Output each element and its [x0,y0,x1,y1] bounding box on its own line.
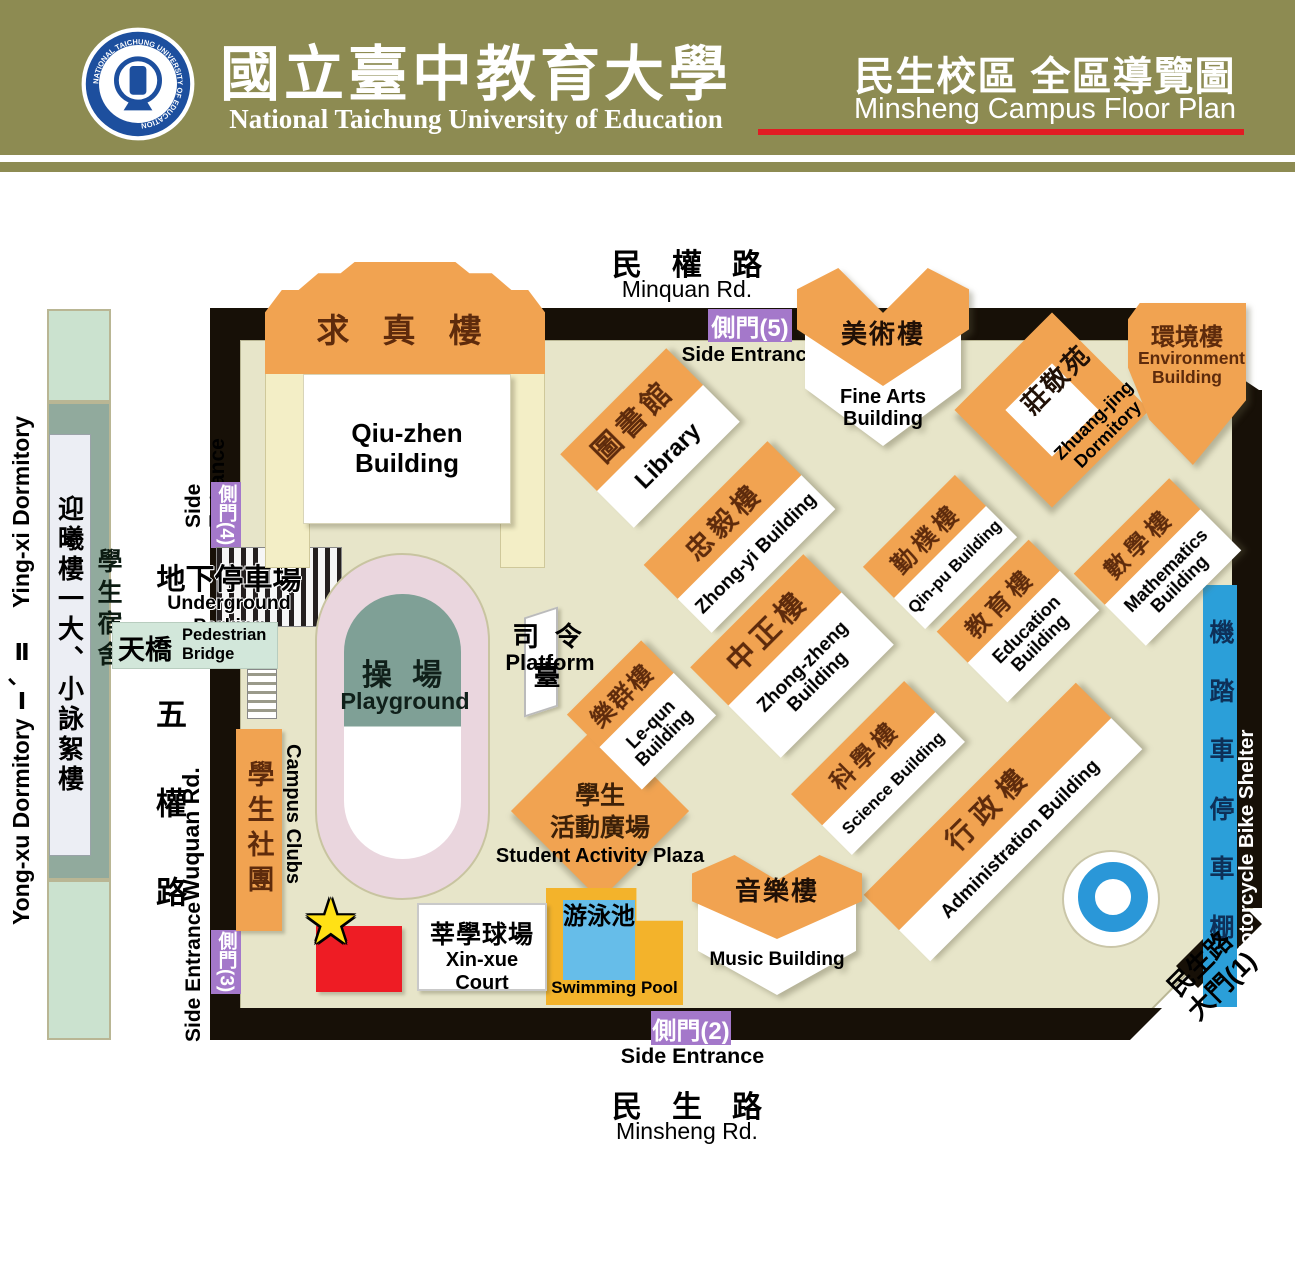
side-entrance4-badge: 側門(4) [211,482,241,548]
swimming-pool: 游泳池 Swimming Pool [546,888,683,1005]
star-icon: ★ [303,892,359,954]
road-minquan-en: Minquan Rd. [572,276,802,303]
side-entrance4-zh: 側門(4) [213,484,240,545]
music-zh: 音樂樓 [692,871,862,908]
side-entrance4-en: Side Entrance [182,388,208,528]
qiuzhen-zh: 求 真 樓 [265,304,545,352]
music-en: Music Building [692,949,862,971]
bike-shelter-en: Motorcycle Bike Shelter [1232,588,1262,1104]
playground-en: Playground [322,688,488,715]
campus-map-poster: NATIONAL TAICHUNG UNIVERSITY OF EDUCATIO… [0,0,1295,1264]
side-entrance2-en: Side Entrance [610,1044,775,1069]
xinxue-en: Xin-xue Court [419,949,545,995]
water-tower-ring [1078,862,1148,932]
xinxue-zh: 莘學球場 [419,915,545,951]
activity-plaza-en: Student Activity Plaza [482,845,718,868]
building-finearts: 美術樓 Fine Arts Building [797,268,969,466]
dormitory-hall: 迎曦樓一大、小詠絮樓 [49,434,91,856]
xinxue-court: 莘學球場 Xin-xue Court [417,903,547,991]
dormitory-hall-label: 迎曦樓一大、小詠絮樓 [52,495,89,795]
qiuzhen-en: Qiu-zhen Building [327,419,487,479]
side-entrance3-badge: 側門(3) [211,930,241,994]
building-music: 音樂樓 Music Building [692,855,862,997]
side-entrance3-zh: 側門(3) [213,931,240,992]
qiuzhen-face: Qiu-zhen Building [303,374,511,524]
dormitory-block-bottom [47,880,111,1040]
dormitory-block-top [47,309,111,402]
finearts-zh: 美術樓 [797,314,969,351]
building-environment: 環境樓 Environment Building [1128,303,1246,465]
road-wuquan-en: Wuquan Rd. [178,716,205,901]
platform-en: Platform [500,650,600,676]
campus-clubs-building: 學生社團 [236,729,282,931]
pool-en: Swimming Pool [548,978,681,998]
pedestrian-bridge-zh: 天橋 [118,628,180,667]
side-entrance5-badge: 側門(5) [708,309,792,342]
side-entrance2-badge: 側門(2) [651,1011,731,1045]
campus-clubs-zh: 學生社團 [240,760,279,900]
environment-zh: 環境樓 [1128,317,1246,352]
side-entrance3-en: Side Entrance [182,890,208,1042]
pool-zh: 游泳池 [563,902,635,932]
bridge-stairs [247,669,277,719]
dormitory-side-label: Yong-xu Dormitory Ⅰ、Ⅱ Ying-xi Dormitory [4,385,42,955]
building-qiuzhen: 求 真 樓 Qiu-zhen Building [265,262,545,560]
finearts-en: Fine Arts Building [828,386,938,430]
activity-plaza-zh2: 活動廣場 [538,808,662,844]
playground-field [344,594,461,859]
campus-clubs-en: Campus Clubs [281,744,304,922]
environment-en: Environment Building [1138,349,1236,388]
road-minsheng-en: Minsheng Rd. [572,1118,802,1145]
pedestrian-bridge-en: Pedestrian Bridge [182,626,278,664]
